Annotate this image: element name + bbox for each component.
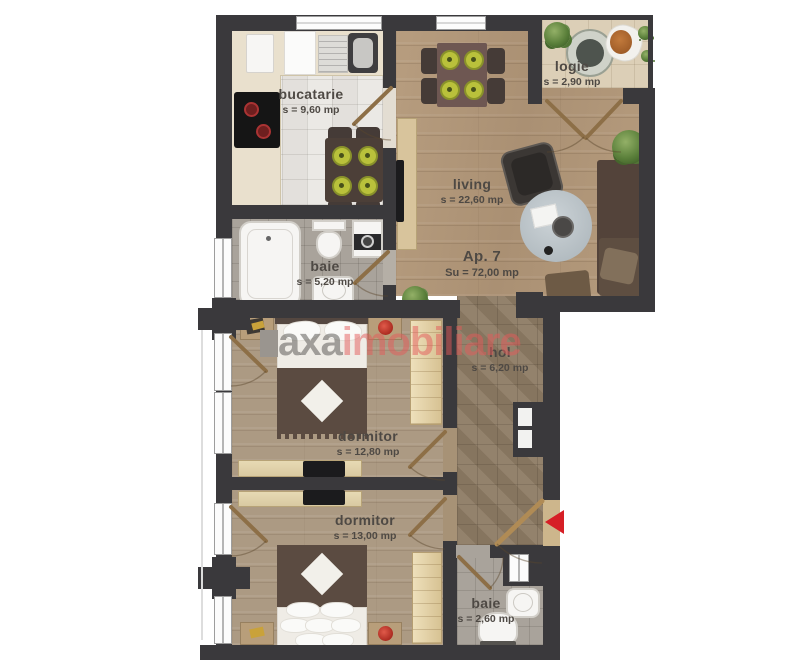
- room-area: s = 5,20 mp: [267, 276, 383, 289]
- room-area: s = 2,90 mp: [527, 76, 617, 89]
- room-label-living: living s = 22,60 mp: [412, 176, 532, 207]
- floor-plan: bucatarie s = 9,60 mp logie s = 2,90 mp …: [0, 0, 800, 671]
- kitchen-sink-basin: [353, 38, 373, 68]
- wall: [232, 477, 443, 490]
- window: [214, 596, 232, 644]
- pillow: [286, 602, 320, 618]
- window: [214, 238, 232, 298]
- bedside-mat: [260, 330, 278, 357]
- door-gap: [383, 250, 396, 285]
- door-gap: [456, 545, 490, 558]
- wall: [383, 148, 396, 219]
- burner: [256, 124, 271, 139]
- room-name: logie: [527, 58, 617, 76]
- coffee-table: [552, 216, 574, 238]
- wall: [543, 296, 655, 312]
- plate: [358, 176, 378, 196]
- kitchen-cabinet: [284, 31, 316, 75]
- sofa-pillow: [599, 247, 639, 285]
- room-area: s = 12,80 mp: [305, 446, 431, 459]
- room-name: living: [412, 176, 532, 194]
- room-name: dormitor: [302, 512, 428, 530]
- chair: [487, 48, 505, 74]
- room-name: baie: [434, 595, 538, 613]
- washing-machine-drum: [361, 235, 374, 248]
- room-name: bucatarie: [246, 86, 376, 104]
- tv: [396, 160, 404, 222]
- watermark-brand-suffix: imobiliare: [342, 320, 521, 364]
- toilet-tank: [312, 220, 346, 231]
- plate: [440, 80, 460, 100]
- apartment-label: Ap. 7 Su = 72,00 mp: [420, 248, 544, 281]
- wall: [383, 219, 396, 250]
- wall: [383, 31, 396, 88]
- window: [509, 554, 529, 582]
- room-name: baie: [267, 258, 383, 276]
- loggia-rail: [648, 15, 653, 90]
- room-label-baie-small: baie s = 2,60 mp: [434, 595, 538, 626]
- apartment-name: Ap. 7: [420, 248, 544, 267]
- balcony-rail: [201, 330, 203, 640]
- window: [214, 392, 232, 454]
- bathtub-drain: [266, 236, 271, 241]
- wall: [639, 88, 655, 296]
- room-area: s = 13,00 mp: [302, 530, 428, 543]
- wall: [216, 300, 460, 318]
- pillar: [212, 557, 236, 599]
- tv: [303, 461, 345, 477]
- chair: [487, 78, 505, 104]
- loggia-rail: [542, 15, 651, 20]
- plant: [544, 22, 570, 48]
- pillow: [320, 602, 354, 618]
- plate: [464, 80, 484, 100]
- pillow: [331, 618, 361, 633]
- balcony-door: [214, 503, 232, 555]
- watermark-brand: axa: [278, 320, 342, 364]
- balcony-door: [214, 333, 232, 391]
- toilet: [316, 231, 342, 259]
- door-gap: [383, 88, 396, 148]
- room-area: s = 2,60 mp: [434, 613, 538, 626]
- door-gap: [443, 428, 457, 472]
- entrance-arrow-icon: [545, 510, 564, 534]
- wall: [200, 645, 560, 660]
- red-flower: [378, 626, 393, 641]
- plate: [440, 50, 460, 70]
- room-area: s = 9,60 mp: [246, 104, 376, 117]
- plate: [464, 50, 484, 70]
- room-label-logie: logie s = 2,90 mp: [527, 58, 617, 89]
- fridge: [246, 34, 274, 73]
- wall: [232, 205, 383, 219]
- wall: [543, 296, 560, 645]
- loggia-chair-cushion: [610, 30, 632, 54]
- shaft-opening: [518, 408, 532, 426]
- plate: [358, 146, 378, 166]
- wall: [516, 292, 543, 318]
- room-label-baie-main: baie s = 5,20 mp: [267, 258, 383, 289]
- wall: [623, 88, 655, 104]
- door-gap: [443, 495, 457, 541]
- plate: [332, 176, 352, 196]
- window: [296, 16, 382, 30]
- apartment-area: Su = 72,00 mp: [420, 267, 544, 281]
- plate: [332, 146, 352, 166]
- cup: [544, 246, 553, 255]
- sink-drainer: [318, 35, 348, 73]
- watermark: axaimobiliare: [278, 320, 521, 365]
- room-label-dormitor-1: dormitor s = 12,80 mp: [305, 428, 431, 459]
- shaft-opening: [518, 430, 532, 448]
- room-label-dormitor-2: dormitor s = 13,00 mp: [302, 512, 428, 543]
- room-area: s = 22,60 mp: [412, 194, 532, 207]
- window: [436, 16, 486, 30]
- tv: [303, 490, 345, 505]
- room-label-bucatarie: bucatarie s = 9,60 mp: [246, 86, 376, 117]
- room-name: dormitor: [305, 428, 431, 446]
